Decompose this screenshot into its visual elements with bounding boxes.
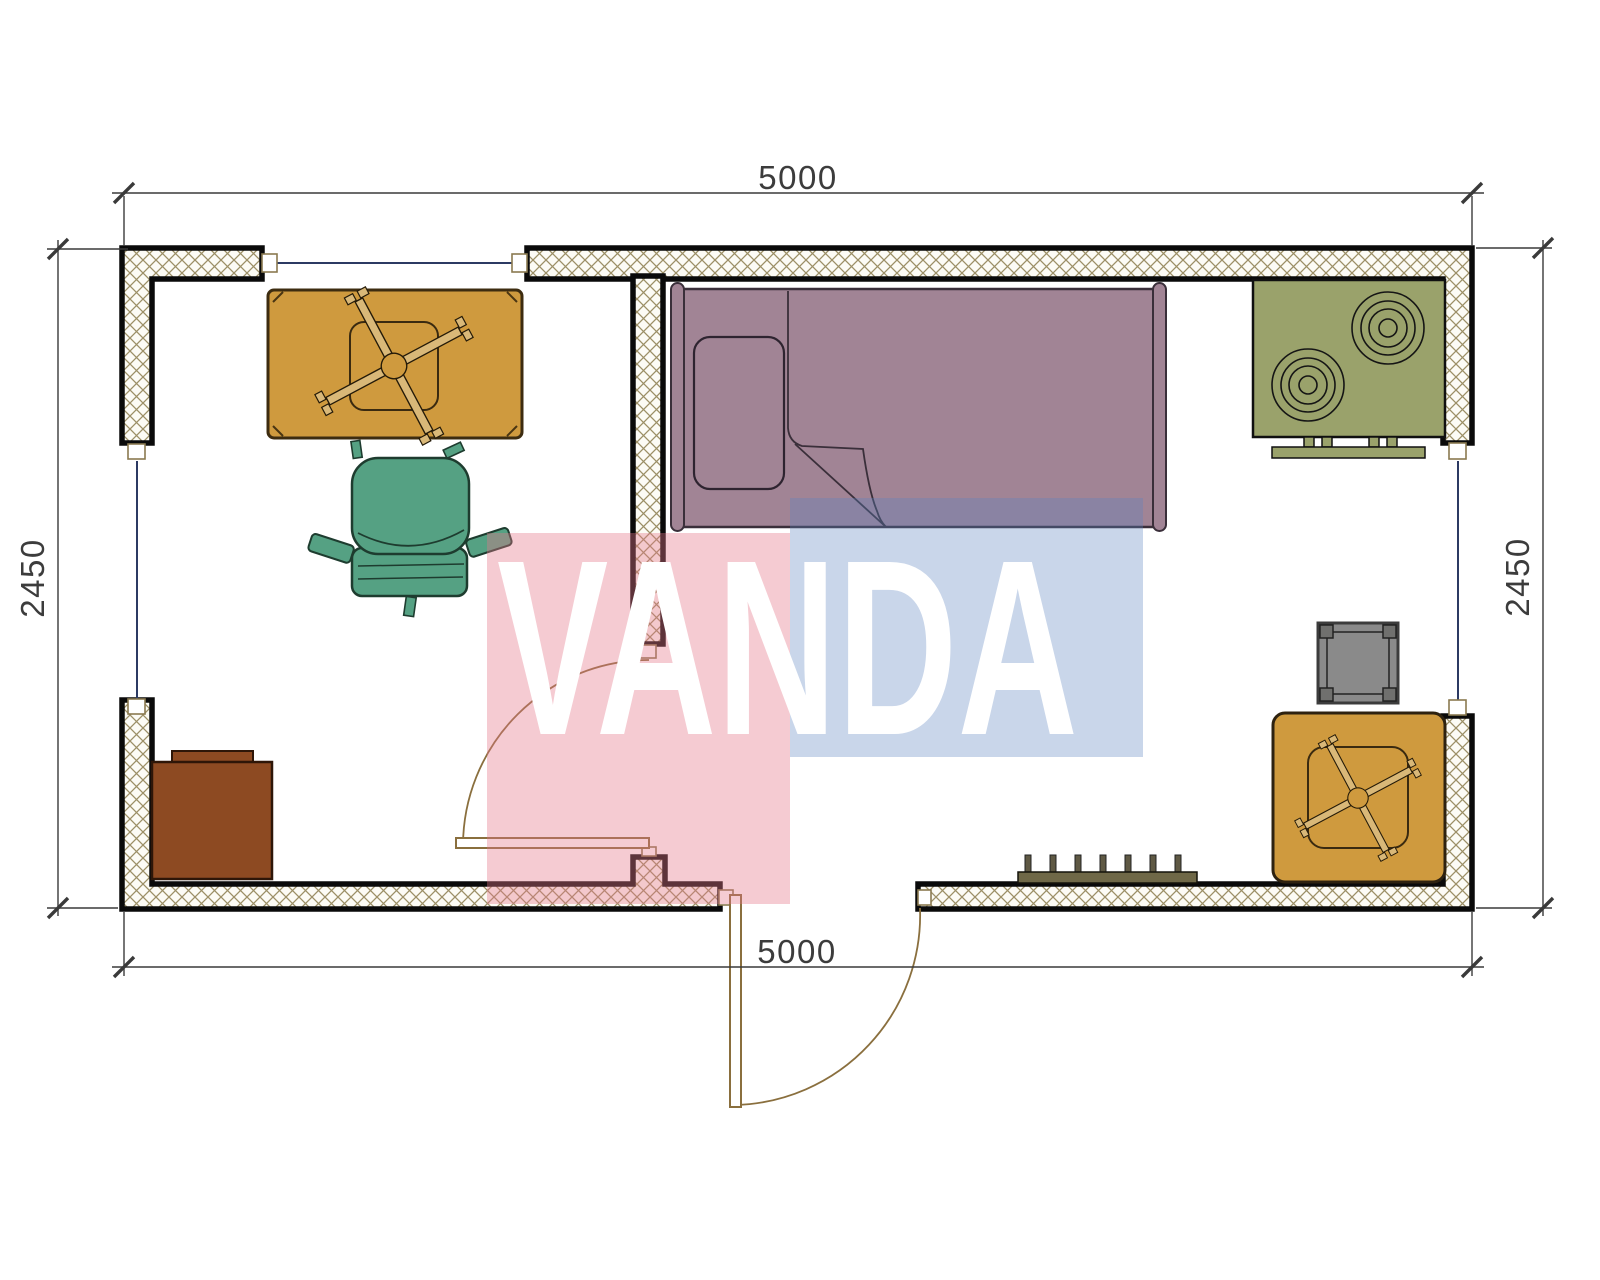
cabinet	[152, 751, 272, 879]
dim-label-top: 5000	[758, 159, 837, 196]
stove-body	[1253, 280, 1445, 437]
bed-footboard-post	[1153, 283, 1166, 531]
wall-top-left-corner	[122, 248, 262, 443]
dim-label-bottom: 5000	[757, 933, 836, 970]
cabinet-body	[152, 762, 272, 879]
chair	[307, 440, 512, 616]
stove-control-bar	[1272, 447, 1425, 458]
door-jamb	[918, 890, 931, 905]
floor-plan-canvas: 5000 5000 2450 2450 VANDA	[0, 0, 1600, 1280]
bed-pillow	[694, 337, 784, 489]
stool	[1318, 623, 1398, 703]
dim-label-left: 2450	[14, 538, 51, 617]
floor-plan-page: 5000 5000 2450 2450 VANDA	[0, 0, 1600, 1280]
window-jamb	[128, 444, 145, 459]
watermark-text: VANDA	[497, 508, 1078, 787]
table-top-left	[268, 253, 522, 478]
bed-headboard-post	[671, 283, 684, 531]
chair-seat	[352, 458, 469, 554]
chair-armrest-left	[307, 533, 354, 564]
dim-label-right: 2450	[1499, 537, 1536, 616]
radiator-bar	[1018, 872, 1197, 883]
table-bottom-right	[1268, 708, 1448, 888]
window-jamb	[262, 254, 277, 272]
chair-foot	[404, 596, 417, 616]
chair-foot	[443, 442, 464, 458]
window-jamb	[512, 254, 527, 272]
chair-foot	[351, 440, 362, 458]
window-jamb	[1449, 443, 1466, 459]
watermark: VANDA	[487, 498, 1143, 904]
window-jamb	[1449, 700, 1466, 715]
window-jamb	[128, 699, 145, 714]
bed	[671, 283, 1166, 531]
stove	[1253, 280, 1445, 458]
radiator	[1018, 855, 1197, 883]
entry-door-leaf	[730, 895, 741, 1107]
